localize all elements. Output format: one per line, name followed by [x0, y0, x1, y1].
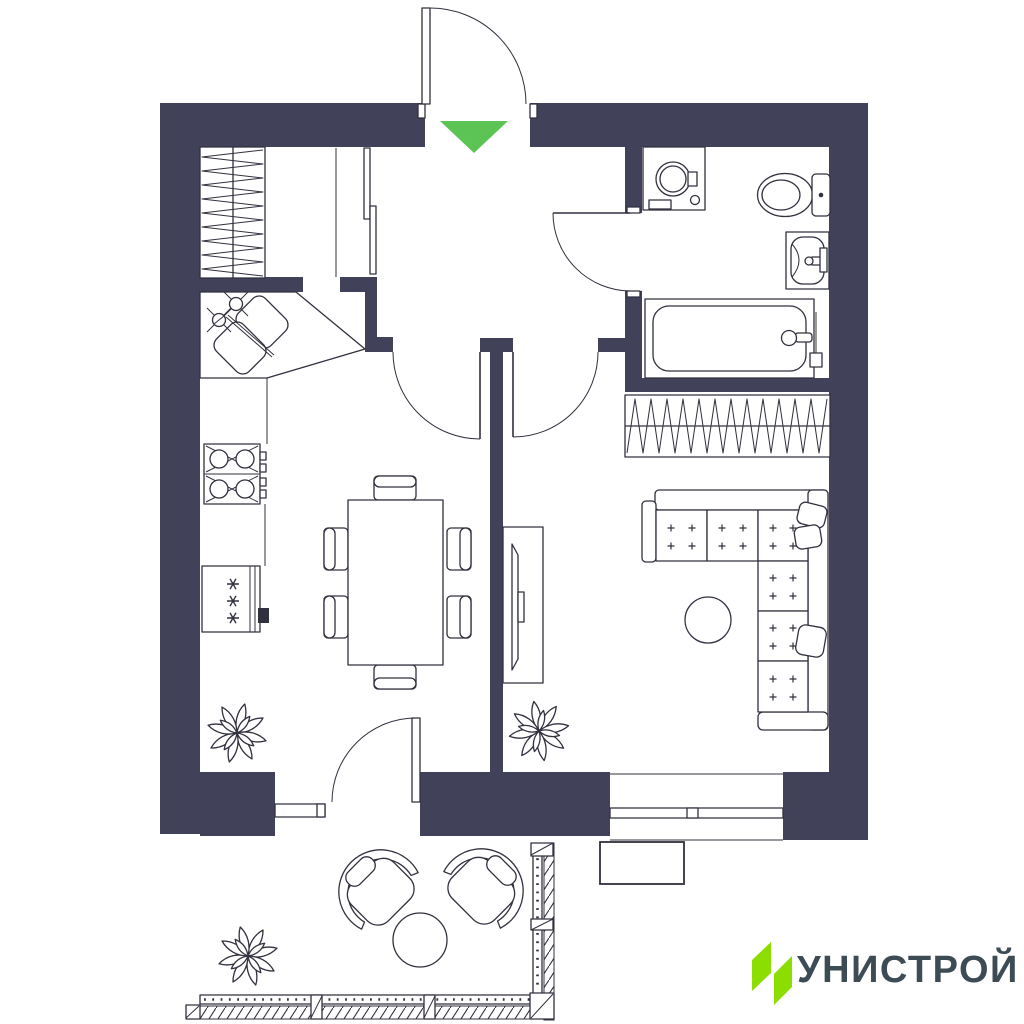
logo-text: УНИСТРОЙ: [797, 946, 1019, 991]
tv-stand-icon: [503, 527, 543, 683]
ac-unit-icon: [600, 842, 684, 884]
interior-door-icon: [393, 352, 480, 439]
kitchen-window-icon: [275, 804, 325, 817]
refrigerator-icon: [202, 566, 269, 632]
dining-table-icon: [348, 500, 443, 665]
balcony-table-icon: [393, 913, 447, 967]
corner-sofa-icon: [642, 490, 828, 730]
window-icon: [610, 774, 783, 840]
dining-chair-icon: [374, 476, 416, 500]
interior-door-icon: [513, 352, 598, 437]
bathtub-icon: [645, 299, 822, 378]
corner-sink-icon: [200, 292, 365, 378]
armchair-icon: [433, 831, 540, 938]
potted-plant-icon: [504, 696, 574, 766]
dining-chair-icon: [447, 596, 471, 638]
wash-basin-icon: [786, 232, 829, 289]
coffee-table-icon: [685, 597, 731, 643]
balcony-door-icon: [332, 718, 420, 802]
potted-plant-icon: [200, 696, 273, 769]
washing-machine-icon: [643, 147, 705, 210]
sliding-wardrobe-door-icon: [364, 148, 376, 274]
dining-chair-icon: [324, 596, 348, 638]
coat-closet-hatch-icon: [200, 147, 336, 278]
dining-chair-icon: [447, 528, 471, 570]
toilet-icon: [758, 174, 831, 217]
dining-chair-icon: [374, 665, 416, 689]
bathroom-door-icon: [553, 213, 630, 291]
logo-mark-icon: [752, 942, 792, 1005]
dining-set: [324, 476, 471, 689]
floor-plan-page: УНИСТРОЙ: [0, 0, 1024, 1024]
floor-plan-svg: УНИСТРОЙ: [0, 0, 1024, 1024]
entry-door-icon: [422, 8, 526, 104]
dining-chair-icon: [324, 528, 348, 570]
built-in-wardrobe-hatch-icon: [625, 395, 830, 457]
entrance-arrow-icon: [440, 121, 508, 153]
gas-stove-icon: [204, 444, 266, 504]
potted-plant-icon: [207, 915, 289, 997]
brand-logo: УНИСТРОЙ: [752, 942, 1019, 1005]
